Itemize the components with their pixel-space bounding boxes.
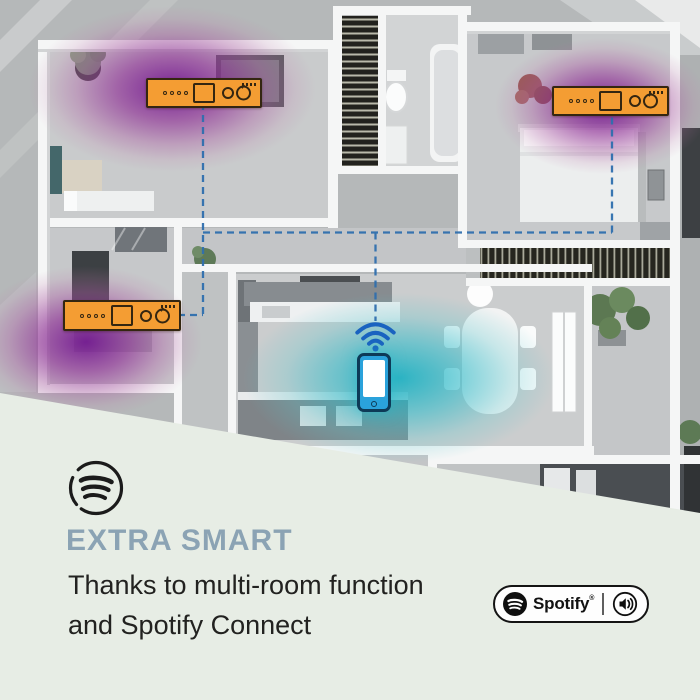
spotify-logo-icon: [502, 591, 528, 617]
speaker-volume-icon: [612, 591, 638, 617]
smartphone: [357, 353, 391, 412]
device-buttons: [163, 91, 188, 95]
wifi-icon: [352, 319, 399, 352]
device-volume-knob: [155, 308, 170, 323]
device-knob: [140, 310, 152, 322]
phone-screen: [363, 360, 385, 397]
device-volume-scale: [161, 305, 176, 308]
description-line-2: and Spotify Connect: [68, 605, 424, 645]
device-display: [193, 83, 215, 104]
device-volume-knob: [643, 94, 658, 109]
spotify-outline-icon: [67, 459, 125, 517]
device-volume-knob: [236, 86, 251, 101]
badge-brand-text: Spotify®: [533, 594, 594, 614]
device-buttons: [80, 314, 105, 318]
device-knob: [222, 87, 234, 99]
device-volume-scale: [242, 83, 257, 86]
device-volume-scale: [649, 91, 664, 94]
device-knob: [629, 95, 641, 107]
heading: EXTRA SMART: [66, 524, 293, 558]
description: Thanks to multi-room function and Spotif…: [68, 565, 424, 645]
badge-divider: [602, 593, 604, 615]
speaker-device-top-left: [146, 78, 262, 108]
marketing-image: EXTRA SMART Thanks to multi-room functio…: [0, 0, 700, 700]
device-display: [111, 305, 134, 327]
device-buttons: [569, 99, 594, 103]
description-line-1: Thanks to multi-room function: [68, 565, 424, 605]
speaker-device-top-right: [552, 86, 669, 116]
spotify-badge: Spotify®: [493, 585, 649, 623]
registered-mark: ®: [589, 595, 594, 602]
speaker-device-mid-left: [63, 300, 181, 331]
phone-home-button: [371, 401, 377, 407]
device-display: [599, 91, 622, 112]
